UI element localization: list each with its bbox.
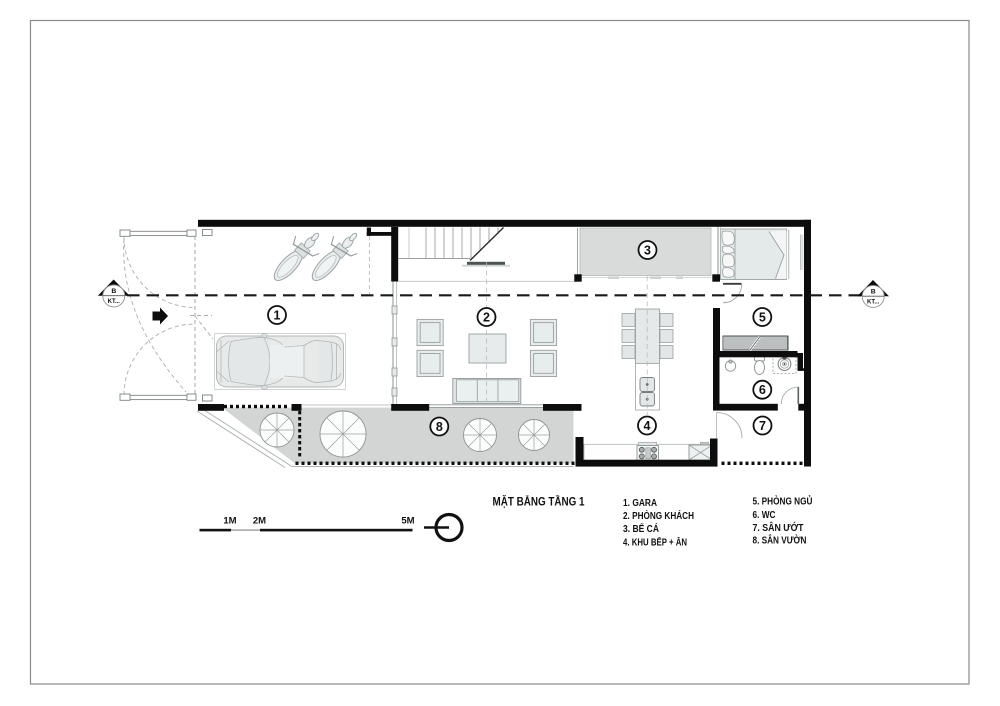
svg-text:MẶT BẰNG TẦNG 1: MẶT BẰNG TẦNG 1 [493,496,586,509]
svg-text:KT...: KT... [108,299,121,305]
svg-text:4: 4 [644,419,651,433]
svg-text:1M: 1M [223,516,236,527]
svg-text:3: 3 [644,243,651,257]
svg-text:3. BỂ CÁ: 3. BỂ CÁ [623,523,659,535]
svg-text:7: 7 [759,419,766,433]
svg-text:2. PHÒNG KHÁCH: 2. PHÒNG KHÁCH [623,510,694,522]
svg-text:2: 2 [483,310,490,324]
svg-text:6: 6 [759,383,766,397]
svg-text:6. WC: 6. WC [753,510,776,521]
svg-text:8. SÂN VƯỜN: 8. SÂN VƯỜN [753,535,807,547]
svg-text:5: 5 [759,310,766,324]
svg-text:KT...: KT... [867,299,880,305]
svg-text:B: B [871,289,876,296]
svg-text:B: B [111,288,116,295]
svg-text:1. GARA: 1. GARA [623,498,657,509]
svg-text:4. KHU BẾP + ĂN: 4. KHU BẾP + ĂN [623,537,687,548]
svg-text:8: 8 [436,420,443,434]
svg-text:2M: 2M [253,516,266,527]
svg-text:5. PHÒNG NGỦ: 5. PHÒNG NGỦ [753,495,813,507]
svg-text:1: 1 [274,308,281,322]
svg-text:7. SÂN ƯỚT: 7. SÂN ƯỚT [753,522,804,534]
svg-text:5M: 5M [401,516,414,527]
